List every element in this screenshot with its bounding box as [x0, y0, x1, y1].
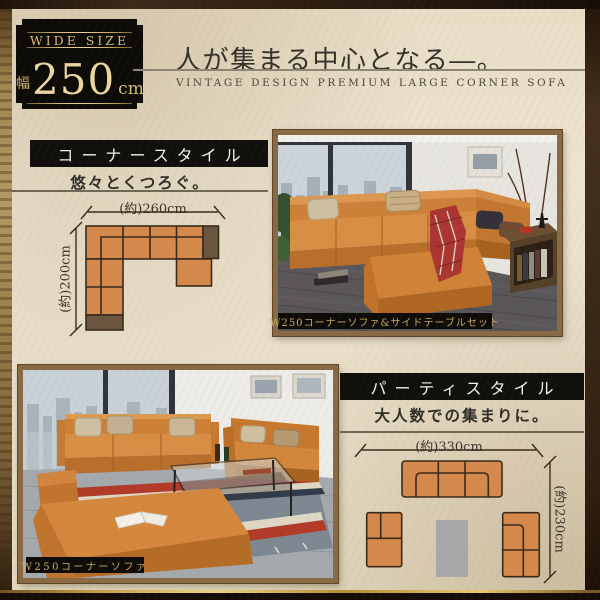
page-subtitle: VINTAGE DESIGN PREMIUM LARGE CORNER SOFA	[176, 77, 567, 89]
party-table-footprint	[436, 520, 468, 577]
page-title: 人が集まる中心となる―。	[175, 40, 504, 77]
corner-sofa-set-scene	[278, 135, 557, 331]
badge-divider	[27, 103, 132, 104]
frame-bottom-edge	[0, 593, 600, 600]
corner-layout-diagram	[53, 195, 238, 340]
corner-sofa-footprint	[86, 226, 219, 330]
photo-caption: W250コーナーソファ&サイドテーブルセット	[278, 313, 492, 329]
badge-width-prefix: 幅	[16, 76, 30, 92]
corner-sofa-scene	[23, 370, 333, 578]
badge-label: WIDE SIZE	[16, 33, 143, 48]
corner-style-rule	[12, 190, 268, 192]
corner-style-heading: コーナースタイル	[30, 140, 268, 167]
badge-size: 幅250cm	[16, 55, 143, 104]
party-style-tagline: 大人数での集まりに。	[340, 404, 584, 426]
party-layout-diagram	[338, 436, 573, 586]
badge-width-unit: cm	[118, 79, 144, 99]
photo-corner-sofa-set: W250コーナーソファ&サイドテーブルセット	[273, 130, 562, 336]
badge-width-value: 250	[32, 55, 115, 104]
party-style-heading: パーティスタイル	[340, 373, 584, 400]
frame-top-edge	[0, 0, 600, 9]
photo-corner-sofa: W250コーナーソファ	[18, 365, 338, 583]
promo-page: WIDE SIZE 幅250cm 人が集まる中心となる―。 VINTAGE DE…	[0, 0, 600, 600]
party-style-rule	[340, 431, 584, 433]
photo-caption: W250コーナーソファ	[26, 557, 144, 573]
wide-size-badge: WIDE SIZE 幅250cm	[16, 19, 143, 109]
frame-left-edge	[0, 0, 12, 600]
badge-divider	[27, 47, 132, 48]
frame-right-edge	[585, 7, 600, 594]
header-rule	[133, 69, 585, 71]
